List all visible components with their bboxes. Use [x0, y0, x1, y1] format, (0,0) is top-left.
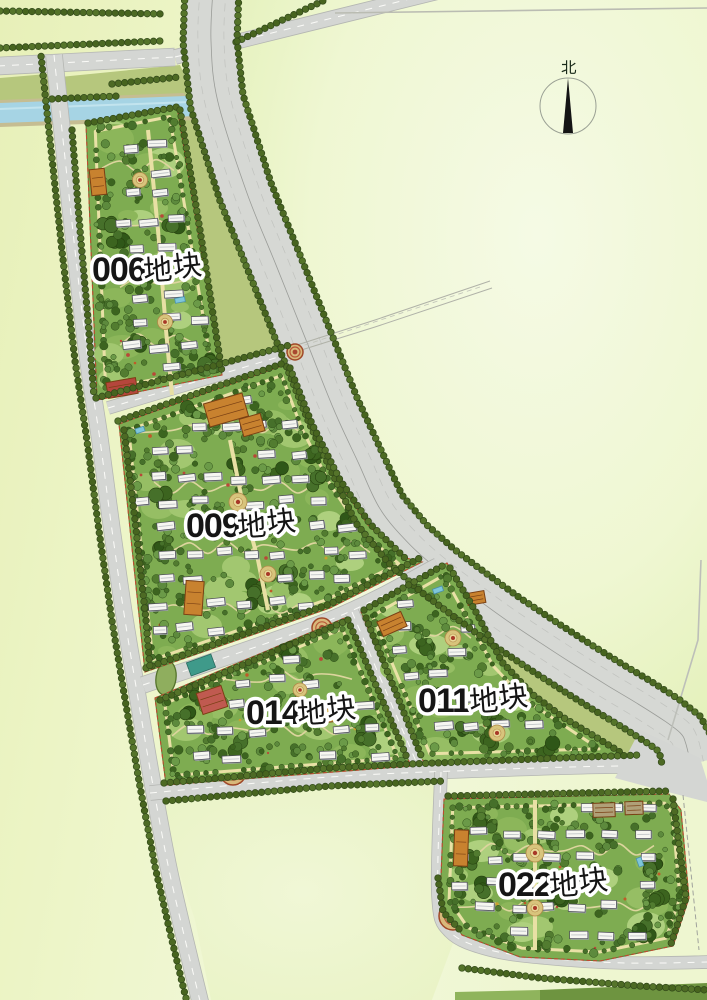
svg-text:006: 006	[92, 251, 146, 289]
svg-text:009: 009	[186, 507, 240, 545]
svg-text:022: 022	[498, 866, 552, 904]
svg-text:011: 011	[418, 682, 470, 720]
svg-text:014: 014	[246, 694, 301, 732]
